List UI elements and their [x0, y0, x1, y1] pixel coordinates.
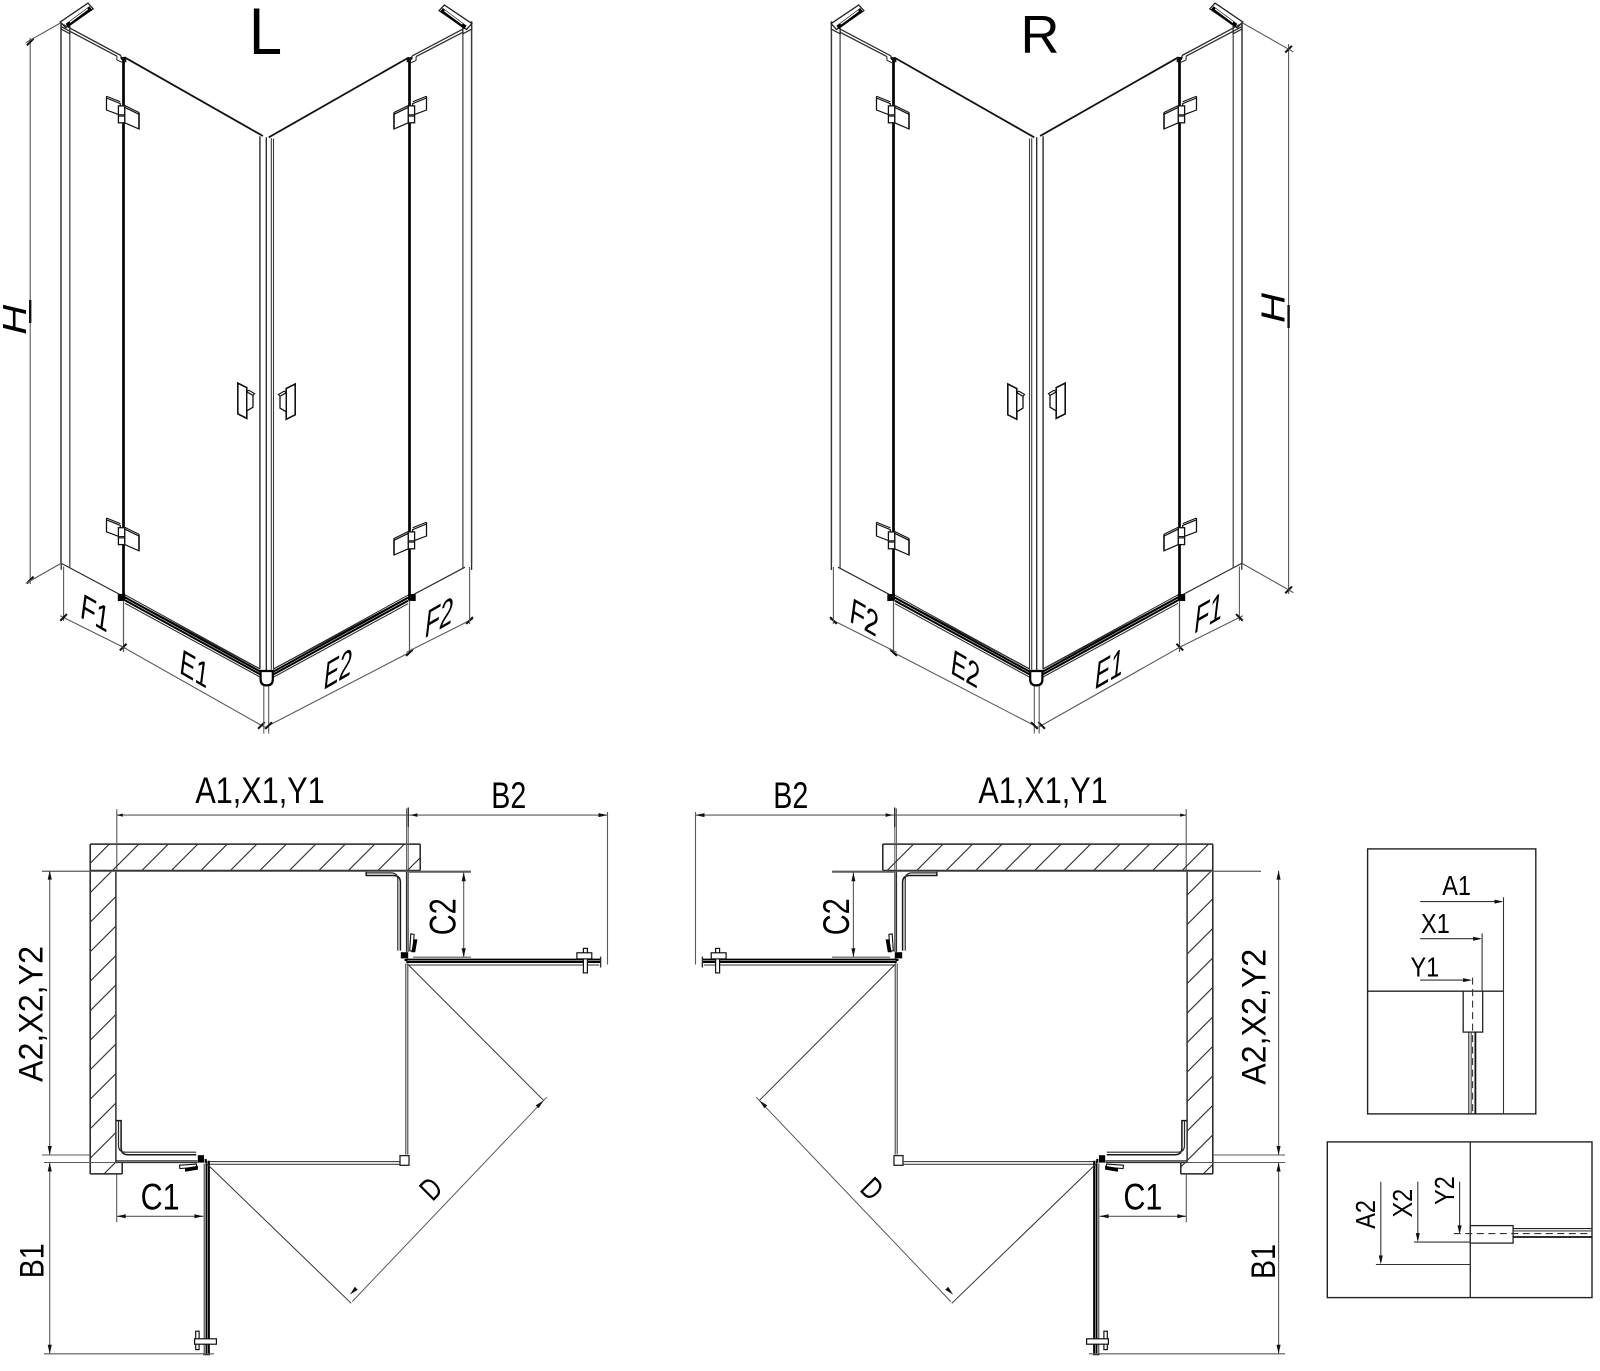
svg-text:C2: C2	[816, 898, 857, 935]
svg-text:C1: C1	[1123, 1176, 1162, 1217]
svg-text:B2: B2	[773, 775, 808, 816]
svg-text:A2,X2,Y2: A2,X2,Y2	[13, 946, 51, 1082]
svg-text:A2,X2,Y2: A2,X2,Y2	[1236, 949, 1274, 1085]
svg-text:Y1: Y1	[1410, 951, 1439, 982]
svg-text:L: L	[249, 0, 282, 68]
svg-text:C2: C2	[423, 898, 464, 935]
svg-text:A2: A2	[1350, 1200, 1381, 1229]
svg-text:H: H	[0, 305, 33, 335]
svg-text:H: H	[1254, 293, 1291, 323]
svg-text:A1,X1,Y1: A1,X1,Y1	[978, 770, 1107, 811]
svg-text:Y2: Y2	[1429, 1176, 1460, 1205]
svg-text:C1: C1	[141, 1176, 180, 1217]
svg-text:B2: B2	[491, 775, 526, 816]
svg-text:X2: X2	[1387, 1189, 1418, 1218]
svg-text:A1: A1	[1442, 870, 1471, 901]
svg-text:X1: X1	[1421, 908, 1450, 939]
svg-text:B1: B1	[14, 1243, 52, 1278]
svg-text:R: R	[1021, 6, 1060, 65]
svg-text:B1: B1	[1245, 1244, 1283, 1279]
svg-text:A1,X1,Y1: A1,X1,Y1	[195, 770, 324, 811]
